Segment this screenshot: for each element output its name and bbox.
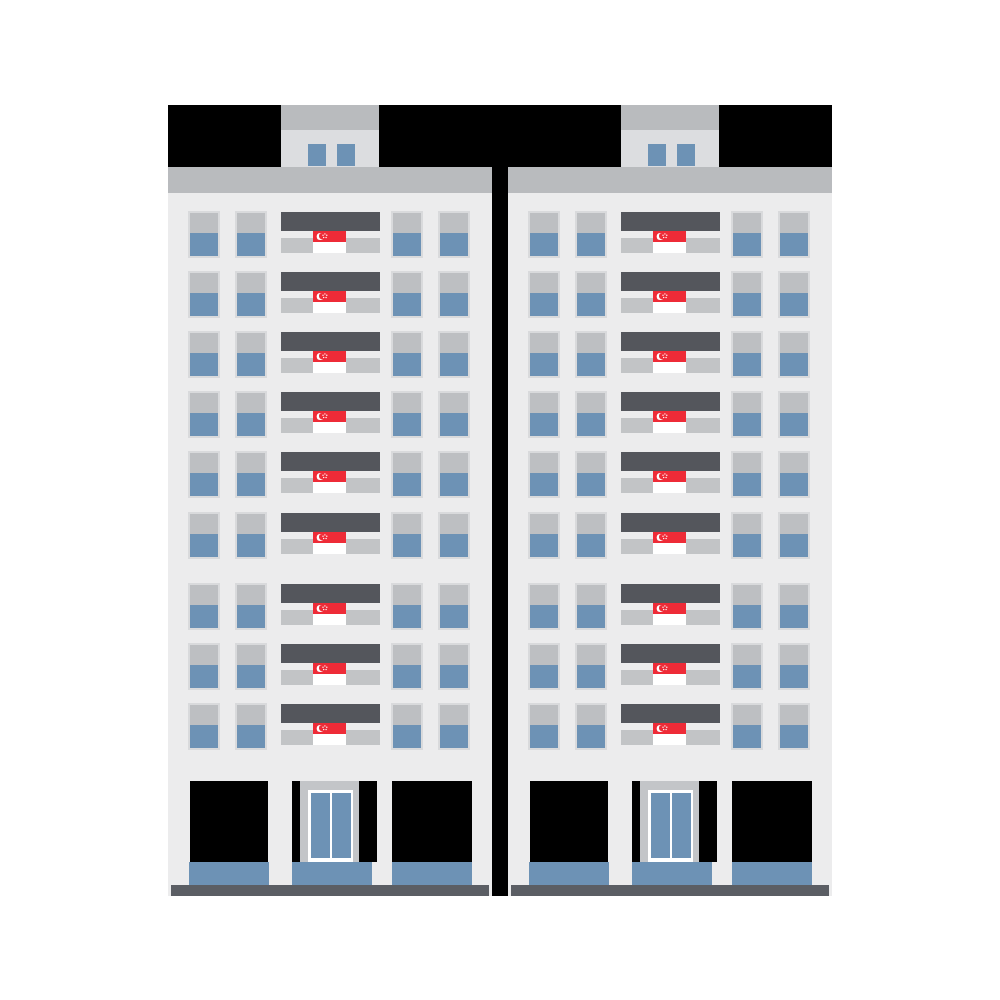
window-pane-lower bbox=[190, 665, 218, 688]
window-pane-upper bbox=[577, 645, 605, 665]
window-pane-lower bbox=[440, 605, 468, 628]
window bbox=[778, 391, 810, 438]
window bbox=[731, 512, 763, 559]
ground-bar bbox=[511, 885, 829, 896]
window bbox=[188, 391, 220, 438]
window-pane-lower bbox=[577, 473, 605, 496]
window-pane-lower bbox=[780, 473, 808, 496]
window-pane-lower bbox=[530, 233, 558, 256]
window-pane-upper bbox=[440, 213, 468, 233]
window-pane-upper bbox=[440, 273, 468, 293]
window bbox=[575, 703, 607, 750]
window bbox=[235, 211, 267, 258]
base-step bbox=[632, 862, 712, 885]
window bbox=[188, 703, 220, 750]
window-pane-upper bbox=[780, 393, 808, 413]
window bbox=[731, 643, 763, 690]
window bbox=[188, 512, 220, 559]
window-pane-upper bbox=[530, 645, 558, 665]
floor-row bbox=[168, 512, 492, 559]
window-pane-upper bbox=[393, 514, 421, 534]
window-pane-lower bbox=[577, 353, 605, 376]
window-pane-upper bbox=[780, 333, 808, 353]
window-pane-upper bbox=[190, 393, 218, 413]
singapore-flag-crescent-and-stars bbox=[313, 532, 346, 554]
window bbox=[235, 331, 267, 378]
window bbox=[391, 271, 423, 318]
window bbox=[391, 451, 423, 498]
window-pane-upper bbox=[440, 705, 468, 725]
balcony-slab bbox=[621, 332, 720, 351]
floor-row bbox=[508, 583, 832, 630]
singapore-flag bbox=[313, 723, 346, 745]
window-pane-upper bbox=[780, 213, 808, 233]
window-pane-lower bbox=[440, 293, 468, 316]
window-pane-upper bbox=[780, 453, 808, 473]
window-pane-upper bbox=[237, 645, 265, 665]
window-pane-lower bbox=[733, 293, 761, 316]
floor-row bbox=[168, 451, 492, 498]
window bbox=[528, 451, 560, 498]
floor-row bbox=[508, 703, 832, 750]
base-step bbox=[392, 862, 472, 885]
window bbox=[188, 643, 220, 690]
window bbox=[188, 271, 220, 318]
singapore-flag bbox=[313, 291, 346, 313]
base-step bbox=[732, 862, 812, 885]
window bbox=[575, 211, 607, 258]
window bbox=[188, 331, 220, 378]
window-pane-lower bbox=[733, 353, 761, 376]
penthouse-cap bbox=[281, 105, 379, 130]
window bbox=[575, 512, 607, 559]
window-pane-upper bbox=[530, 453, 558, 473]
window bbox=[575, 331, 607, 378]
window bbox=[575, 271, 607, 318]
window-pane-lower bbox=[577, 413, 605, 436]
window bbox=[731, 451, 763, 498]
singapore-flag-crescent-and-stars bbox=[653, 603, 686, 625]
singapore-flag-crescent-and-stars bbox=[313, 723, 346, 745]
building-1 bbox=[168, 105, 492, 896]
balcony-slab bbox=[281, 644, 380, 663]
window bbox=[438, 271, 470, 318]
floor-row bbox=[168, 391, 492, 438]
window bbox=[778, 643, 810, 690]
singapore-flag bbox=[313, 411, 346, 433]
penthouse-window bbox=[337, 144, 355, 166]
window-pane-upper bbox=[577, 585, 605, 605]
balcony-slab bbox=[621, 704, 720, 723]
window bbox=[438, 331, 470, 378]
window-pane-lower bbox=[190, 293, 218, 316]
window-pane-upper bbox=[733, 705, 761, 725]
roof-block-left bbox=[508, 105, 621, 167]
window bbox=[778, 211, 810, 258]
scene bbox=[0, 0, 1000, 1000]
illustration-canvas bbox=[0, 0, 1000, 1000]
floor-row bbox=[508, 331, 832, 378]
window-pane-upper bbox=[393, 213, 421, 233]
window-pane-lower bbox=[577, 665, 605, 688]
singapore-flag-crescent-and-stars bbox=[653, 291, 686, 313]
window-pane-upper bbox=[393, 453, 421, 473]
window bbox=[438, 643, 470, 690]
window bbox=[528, 643, 560, 690]
singapore-flag bbox=[653, 471, 686, 493]
window-pane-upper bbox=[237, 213, 265, 233]
singapore-flag-crescent-and-stars bbox=[653, 663, 686, 685]
window-pane-lower bbox=[190, 353, 218, 376]
door-panel bbox=[332, 793, 351, 858]
window bbox=[528, 211, 560, 258]
window-pane-upper bbox=[237, 453, 265, 473]
window bbox=[528, 391, 560, 438]
window-pane-lower bbox=[577, 534, 605, 557]
window-pane-upper bbox=[530, 333, 558, 353]
balcony-slab bbox=[281, 332, 380, 351]
window bbox=[778, 703, 810, 750]
window bbox=[438, 211, 470, 258]
window bbox=[188, 211, 220, 258]
window bbox=[391, 391, 423, 438]
window-pane-upper bbox=[530, 213, 558, 233]
window-pane-lower bbox=[530, 534, 558, 557]
penthouse-body bbox=[281, 130, 379, 167]
window-pane-upper bbox=[237, 705, 265, 725]
singapore-flag bbox=[653, 351, 686, 373]
balcony-slab bbox=[621, 272, 720, 291]
window-pane-lower bbox=[237, 353, 265, 376]
singapore-flag bbox=[653, 723, 686, 745]
window bbox=[528, 271, 560, 318]
window-pane-lower bbox=[237, 725, 265, 748]
singapore-flag-crescent-and-stars bbox=[653, 471, 686, 493]
window bbox=[438, 703, 470, 750]
window-pane-upper bbox=[733, 213, 761, 233]
singapore-flag bbox=[653, 231, 686, 253]
window-pane-upper bbox=[237, 393, 265, 413]
floor-row bbox=[168, 271, 492, 318]
singapore-flag bbox=[313, 231, 346, 253]
window bbox=[391, 643, 423, 690]
window bbox=[778, 583, 810, 630]
singapore-flag-crescent-and-stars bbox=[313, 231, 346, 253]
window bbox=[391, 703, 423, 750]
base-step bbox=[292, 862, 372, 885]
entrance-door-surround bbox=[648, 790, 693, 862]
window bbox=[778, 331, 810, 378]
balcony-slab bbox=[281, 212, 380, 231]
window bbox=[575, 391, 607, 438]
window-pane-lower bbox=[440, 413, 468, 436]
balcony-slab bbox=[621, 392, 720, 411]
window bbox=[235, 583, 267, 630]
window-pane-lower bbox=[577, 725, 605, 748]
void-deck-opening bbox=[190, 781, 268, 862]
window bbox=[528, 703, 560, 750]
window-pane-upper bbox=[577, 514, 605, 534]
singapore-flag bbox=[313, 351, 346, 373]
window bbox=[188, 451, 220, 498]
base-step bbox=[189, 862, 269, 885]
balcony-slab bbox=[281, 513, 380, 532]
roof-block-right bbox=[719, 105, 832, 167]
window-pane-upper bbox=[577, 705, 605, 725]
window-pane-upper bbox=[190, 453, 218, 473]
window-pane-upper bbox=[780, 705, 808, 725]
singapore-flag-crescent-and-stars bbox=[313, 291, 346, 313]
window-pane-lower bbox=[780, 293, 808, 316]
window bbox=[778, 512, 810, 559]
singapore-flag-crescent-and-stars bbox=[653, 532, 686, 554]
singapore-flag-crescent-and-stars bbox=[653, 411, 686, 433]
window-pane-upper bbox=[780, 514, 808, 534]
window-pane-upper bbox=[577, 393, 605, 413]
balcony-slab bbox=[621, 513, 720, 532]
roof-band bbox=[168, 167, 492, 193]
window-pane-lower bbox=[733, 725, 761, 748]
window bbox=[731, 391, 763, 438]
ground-bar bbox=[171, 885, 489, 896]
singapore-flag-crescent-and-stars bbox=[313, 603, 346, 625]
window-pane-lower bbox=[577, 233, 605, 256]
penthouse-body bbox=[621, 130, 719, 167]
window-pane-lower bbox=[237, 665, 265, 688]
window bbox=[731, 703, 763, 750]
window-pane-lower bbox=[440, 725, 468, 748]
window-pane-upper bbox=[577, 273, 605, 293]
floor-row bbox=[168, 331, 492, 378]
window bbox=[235, 451, 267, 498]
window-pane-lower bbox=[530, 353, 558, 376]
window-pane-upper bbox=[190, 585, 218, 605]
window-pane-lower bbox=[733, 605, 761, 628]
window-pane-upper bbox=[530, 514, 558, 534]
window-pane-lower bbox=[440, 665, 468, 688]
window bbox=[438, 391, 470, 438]
window bbox=[438, 583, 470, 630]
window-pane-lower bbox=[393, 473, 421, 496]
window bbox=[188, 583, 220, 630]
window bbox=[575, 583, 607, 630]
floor-row bbox=[168, 211, 492, 258]
window-pane-upper bbox=[577, 333, 605, 353]
floor-row bbox=[168, 703, 492, 750]
door-panel bbox=[311, 793, 330, 858]
window bbox=[438, 512, 470, 559]
window-pane-lower bbox=[530, 473, 558, 496]
floor-row bbox=[508, 512, 832, 559]
void-deck-opening bbox=[530, 781, 608, 862]
window bbox=[235, 391, 267, 438]
window-pane-lower bbox=[237, 413, 265, 436]
window-pane-upper bbox=[780, 585, 808, 605]
window-pane-lower bbox=[237, 605, 265, 628]
void-deck-opening bbox=[732, 781, 812, 862]
window-pane-lower bbox=[440, 233, 468, 256]
singapore-flag-crescent-and-stars bbox=[313, 663, 346, 685]
window bbox=[235, 703, 267, 750]
window-pane-lower bbox=[780, 534, 808, 557]
window-pane-upper bbox=[190, 645, 218, 665]
window-pane-upper bbox=[237, 333, 265, 353]
floor-row bbox=[168, 583, 492, 630]
window-pane-upper bbox=[577, 213, 605, 233]
balcony-slab bbox=[281, 392, 380, 411]
window-pane-lower bbox=[190, 534, 218, 557]
singapore-flag-crescent-and-stars bbox=[313, 411, 346, 433]
void-deck-opening bbox=[392, 781, 472, 862]
window bbox=[528, 331, 560, 378]
window-pane-upper bbox=[393, 393, 421, 413]
balcony-slab bbox=[281, 272, 380, 291]
window-pane-lower bbox=[237, 233, 265, 256]
balcony-slab bbox=[281, 584, 380, 603]
window bbox=[391, 331, 423, 378]
window-pane-upper bbox=[440, 645, 468, 665]
window-pane-lower bbox=[237, 473, 265, 496]
window bbox=[778, 271, 810, 318]
window-pane-upper bbox=[190, 514, 218, 534]
window bbox=[235, 643, 267, 690]
window-pane-upper bbox=[190, 705, 218, 725]
window-pane-upper bbox=[530, 273, 558, 293]
window-pane-lower bbox=[393, 413, 421, 436]
window-pane-lower bbox=[733, 473, 761, 496]
window bbox=[438, 451, 470, 498]
window-pane-lower bbox=[190, 233, 218, 256]
roof-block-left bbox=[168, 105, 281, 167]
window bbox=[391, 583, 423, 630]
window-pane-upper bbox=[733, 453, 761, 473]
window bbox=[391, 512, 423, 559]
window-pane-upper bbox=[237, 273, 265, 293]
window-pane-lower bbox=[440, 473, 468, 496]
window bbox=[528, 583, 560, 630]
window-pane-upper bbox=[237, 585, 265, 605]
window-pane-lower bbox=[190, 605, 218, 628]
singapore-flag-crescent-and-stars bbox=[313, 471, 346, 493]
window-pane-lower bbox=[237, 293, 265, 316]
building-gap-shadow bbox=[492, 105, 508, 896]
window-pane-upper bbox=[237, 514, 265, 534]
penthouse-cap bbox=[621, 105, 719, 130]
window-pane-upper bbox=[577, 453, 605, 473]
singapore-flag-crescent-and-stars bbox=[653, 231, 686, 253]
singapore-flag-crescent-and-stars bbox=[653, 723, 686, 745]
window-pane-upper bbox=[440, 453, 468, 473]
balcony-slab bbox=[621, 644, 720, 663]
window-pane-upper bbox=[530, 705, 558, 725]
window bbox=[575, 643, 607, 690]
window-pane-lower bbox=[733, 665, 761, 688]
window-pane-upper bbox=[780, 645, 808, 665]
window-pane-upper bbox=[733, 585, 761, 605]
balcony-slab bbox=[281, 452, 380, 471]
window-pane-upper bbox=[440, 514, 468, 534]
window-pane-upper bbox=[733, 645, 761, 665]
window bbox=[528, 512, 560, 559]
window-pane-lower bbox=[190, 725, 218, 748]
window-pane-lower bbox=[237, 534, 265, 557]
penthouse-window bbox=[677, 144, 695, 166]
window-pane-lower bbox=[393, 233, 421, 256]
window-pane-upper bbox=[733, 273, 761, 293]
singapore-flag bbox=[313, 471, 346, 493]
window-pane-lower bbox=[393, 665, 421, 688]
window-pane-upper bbox=[190, 333, 218, 353]
window-pane-lower bbox=[780, 725, 808, 748]
window bbox=[575, 451, 607, 498]
floor-row bbox=[508, 451, 832, 498]
balcony-slab bbox=[281, 704, 380, 723]
window-pane-lower bbox=[190, 413, 218, 436]
window-pane-lower bbox=[393, 353, 421, 376]
window bbox=[731, 583, 763, 630]
window-pane-lower bbox=[393, 605, 421, 628]
building-2 bbox=[508, 105, 832, 896]
window-pane-lower bbox=[577, 605, 605, 628]
floor-row bbox=[168, 643, 492, 690]
balcony-slab bbox=[621, 452, 720, 471]
window bbox=[778, 451, 810, 498]
window-pane-lower bbox=[780, 605, 808, 628]
window-pane-lower bbox=[530, 605, 558, 628]
window-pane-lower bbox=[733, 413, 761, 436]
window-pane-lower bbox=[440, 534, 468, 557]
singapore-flag bbox=[653, 411, 686, 433]
window-pane-lower bbox=[393, 293, 421, 316]
floor-row bbox=[508, 391, 832, 438]
roof-band bbox=[508, 167, 832, 193]
window-pane-upper bbox=[393, 645, 421, 665]
singapore-flag bbox=[653, 291, 686, 313]
window-pane-upper bbox=[440, 333, 468, 353]
floor-row bbox=[508, 643, 832, 690]
window bbox=[235, 512, 267, 559]
entrance-door-surround bbox=[308, 790, 353, 862]
base-step bbox=[529, 862, 609, 885]
window-pane-lower bbox=[780, 413, 808, 436]
door-panel bbox=[672, 793, 691, 858]
window-pane-lower bbox=[393, 725, 421, 748]
door-panel bbox=[651, 793, 670, 858]
window-pane-lower bbox=[530, 413, 558, 436]
window bbox=[731, 331, 763, 378]
singapore-flag bbox=[653, 603, 686, 625]
window-pane-upper bbox=[393, 585, 421, 605]
window-pane-upper bbox=[393, 333, 421, 353]
window-pane-lower bbox=[733, 233, 761, 256]
window-pane-lower bbox=[530, 665, 558, 688]
window-pane-upper bbox=[530, 393, 558, 413]
singapore-flag bbox=[313, 663, 346, 685]
window-pane-upper bbox=[440, 393, 468, 413]
window-pane-upper bbox=[190, 213, 218, 233]
window-pane-upper bbox=[440, 585, 468, 605]
floor-row bbox=[508, 271, 832, 318]
penthouse-window bbox=[308, 144, 326, 166]
window bbox=[391, 211, 423, 258]
window-pane-lower bbox=[530, 725, 558, 748]
window-pane-upper bbox=[780, 273, 808, 293]
window-pane-lower bbox=[577, 293, 605, 316]
penthouse-window bbox=[648, 144, 666, 166]
window-pane-lower bbox=[440, 353, 468, 376]
window-pane-upper bbox=[733, 514, 761, 534]
singapore-flag bbox=[313, 532, 346, 554]
